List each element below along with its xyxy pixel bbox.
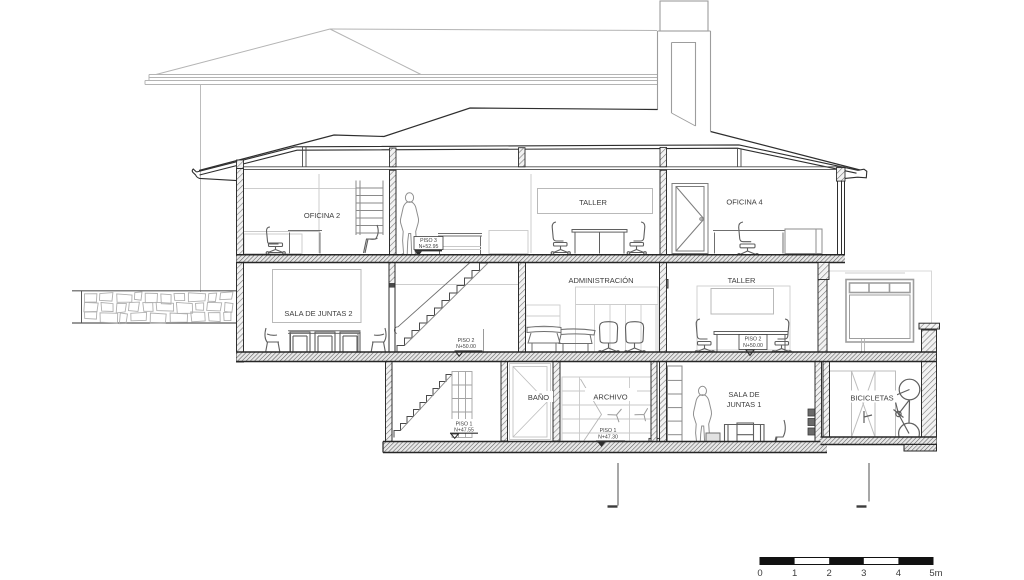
svg-text:OFICINA 4: OFICINA 4	[726, 198, 762, 207]
svg-text:N+50.00: N+50.00	[456, 344, 476, 350]
svg-text:SALA DE: SALA DE	[728, 390, 759, 399]
svg-text:0: 0	[757, 568, 762, 579]
svg-text:4: 4	[896, 568, 901, 579]
svg-text:3: 3	[861, 568, 866, 579]
svg-text:OFICINA 2: OFICINA 2	[304, 211, 340, 220]
svg-text:PISO 2: PISO 2	[745, 337, 762, 343]
svg-text:PISO 1: PISO 1	[600, 428, 617, 434]
svg-text:5m: 5m	[929, 568, 942, 579]
svg-text:TALLER: TALLER	[728, 276, 756, 285]
svg-text:N+47.30: N+47.30	[598, 435, 618, 441]
svg-text:ADMINISTRACIÓN: ADMINISTRACIÓN	[568, 276, 633, 285]
svg-text:JUNTAS 1: JUNTAS 1	[727, 400, 762, 409]
svg-text:1: 1	[792, 568, 797, 579]
svg-text:TALLER: TALLER	[579, 198, 607, 207]
svg-text:SALA DE JUNTAS 2: SALA DE JUNTAS 2	[284, 309, 352, 318]
svg-text:2: 2	[827, 568, 832, 579]
svg-text:ARCHIVO: ARCHIVO	[593, 393, 627, 402]
svg-text:N+50.00: N+50.00	[743, 343, 763, 349]
svg-text:BICICLETAS: BICICLETAS	[850, 394, 893, 403]
svg-text:N+52.95: N+52.95	[419, 244, 439, 250]
svg-text:BAÑO: BAÑO	[528, 393, 549, 402]
